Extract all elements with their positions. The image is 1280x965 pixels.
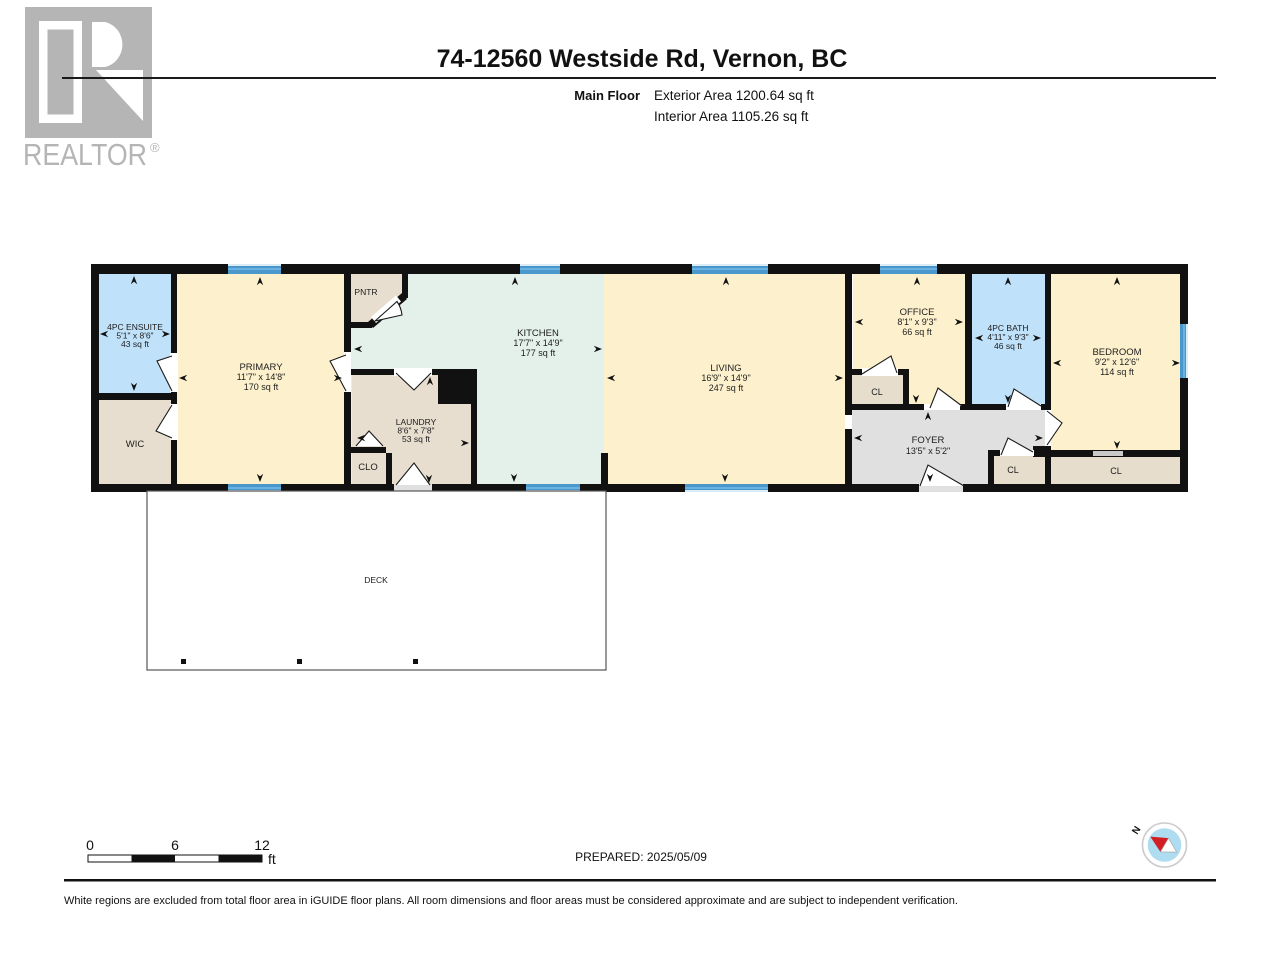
svg-text:74-12560 Westside Rd, Vernon,: 74-12560 Westside Rd, Vernon, BC — [437, 45, 848, 73]
svg-text:WIC: WIC — [126, 439, 145, 450]
svg-text:White regions are excluded fro: White regions are excluded from total fl… — [64, 895, 958, 907]
svg-text:16'9" x 14'9": 16'9" x 14'9" — [701, 373, 750, 383]
svg-text:CL: CL — [1110, 466, 1122, 476]
svg-text:9'2" x 12'6": 9'2" x 12'6" — [1095, 357, 1139, 367]
svg-text:53 sq ft: 53 sq ft — [402, 434, 431, 444]
svg-text:ft: ft — [268, 851, 276, 867]
svg-text:247 sq ft: 247 sq ft — [709, 383, 744, 393]
svg-text:170 sq ft: 170 sq ft — [244, 382, 279, 392]
svg-text:17'7" x 14'9": 17'7" x 14'9" — [513, 338, 562, 348]
svg-text:0: 0 — [86, 837, 94, 853]
svg-text:Exterior Area 1200.64 sq ft: Exterior Area 1200.64 sq ft — [654, 88, 814, 103]
svg-text:Interior Area 1105.26 sq ft: Interior Area 1105.26 sq ft — [654, 109, 809, 124]
svg-text:11'7" x 14'8": 11'7" x 14'8" — [237, 372, 286, 382]
svg-text:8'1" x 9'3": 8'1" x 9'3" — [897, 317, 936, 327]
svg-text:6: 6 — [171, 837, 179, 853]
svg-text:Main Floor: Main Floor — [574, 88, 640, 103]
svg-text:®: ® — [150, 140, 160, 155]
svg-text:FOYER: FOYER — [912, 435, 945, 446]
svg-text:13'5" x 5'2": 13'5" x 5'2" — [906, 446, 950, 456]
svg-text:177 sq ft: 177 sq ft — [521, 348, 556, 358]
svg-text:PNTR: PNTR — [354, 287, 377, 297]
svg-text:PREPARED: 2025/05/09: PREPARED: 2025/05/09 — [575, 850, 707, 864]
svg-text:CL: CL — [1007, 465, 1019, 475]
svg-text:114 sq ft: 114 sq ft — [1100, 367, 1134, 377]
svg-text:CL: CL — [871, 387, 883, 397]
svg-text:43 sq ft: 43 sq ft — [121, 339, 150, 349]
svg-text:66 sq ft: 66 sq ft — [902, 327, 932, 337]
svg-text:46 sq ft: 46 sq ft — [994, 341, 1023, 351]
svg-text:DECK: DECK — [364, 575, 388, 585]
svg-text:CLO: CLO — [358, 462, 378, 473]
svg-text:REALTOR: REALTOR — [23, 137, 147, 172]
